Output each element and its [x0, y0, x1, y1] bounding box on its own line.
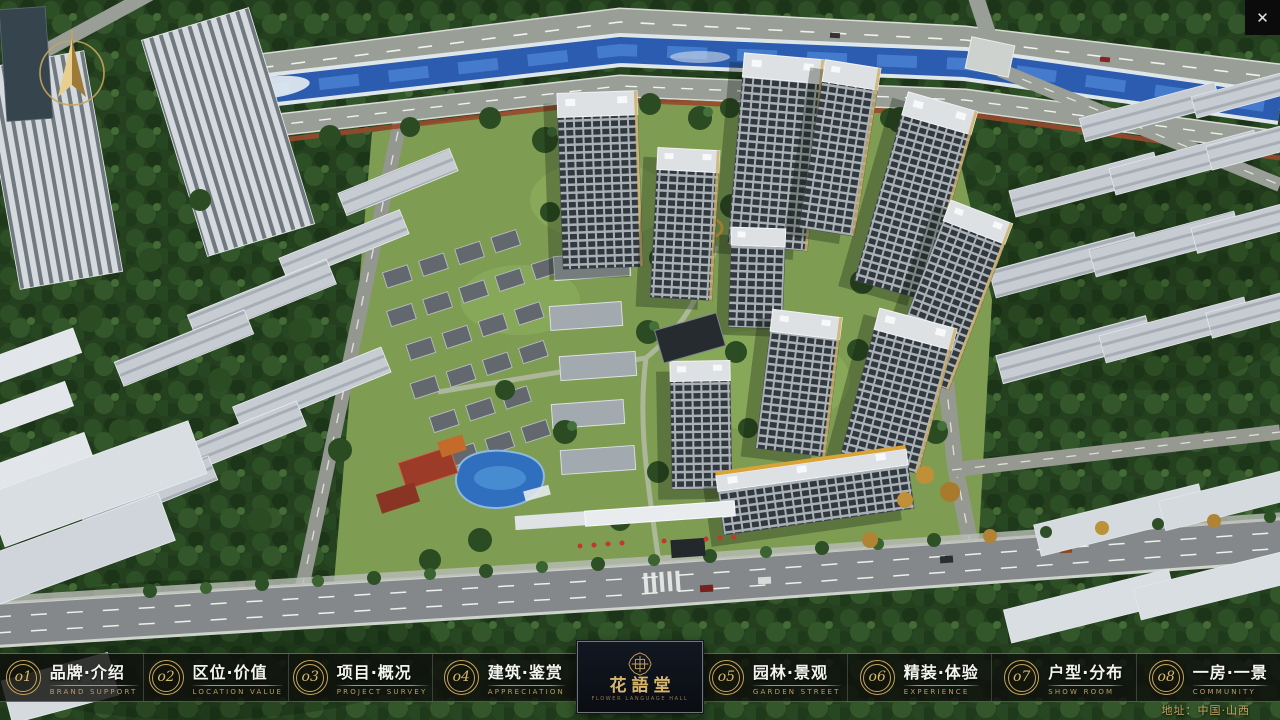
car — [940, 556, 953, 564]
nav-number-badge: o1 — [6, 660, 41, 695]
nav-item-floorplan[interactable]: o7 户型·分布 SHOW ROOM — [992, 654, 1137, 701]
gold-rule — [904, 685, 979, 686]
nav-number: o1 — [15, 669, 32, 685]
gold-rule — [337, 685, 428, 686]
project-logo[interactable]: 花語堂 FLOWER LANGUAGE HALL — [577, 641, 703, 713]
nav-label: 品牌·介绍 — [50, 659, 138, 683]
nav-number-badge: o2 — [149, 660, 184, 695]
nav-item-project[interactable]: o3 项目·概况 PROJECT SURVEY — [289, 654, 433, 701]
address-label: 地址：中国·山西 — [1162, 702, 1251, 718]
nav-item-decoration[interactable]: o6 精装·体验 EXPERIENCE — [848, 654, 993, 701]
gold-rule — [193, 685, 284, 686]
gold-rule — [50, 685, 138, 686]
gold-rule — [753, 685, 841, 686]
nav-sublabel: LOCATION VALUE — [193, 688, 284, 696]
nav-number-badge: o4 — [444, 660, 479, 695]
bottom-nav-bar: o1 品牌·介绍 BRAND SUPPORT o2 区位·价值 LOCATION… — [0, 653, 1280, 702]
gold-rule — [1193, 685, 1268, 686]
nav-number-badge: o8 — [1149, 660, 1184, 695]
nav-item-location[interactable]: o2 区位·价值 LOCATION VALUE — [144, 654, 288, 701]
nav-label: 区位·价值 — [193, 659, 284, 683]
nav-label: 建筑·鉴赏 — [488, 659, 565, 683]
seal-icon — [628, 652, 652, 676]
nav-sublabel: COMMUNITY — [1193, 688, 1268, 696]
nav-number: o7 — [1013, 669, 1030, 685]
logo-title: 花語堂 — [605, 678, 676, 695]
nav-item-room-view[interactable]: o8 一房·一景 COMMUNITY — [1137, 654, 1280, 701]
nav-number: o8 — [1158, 669, 1175, 685]
nav-label: 户型·分布 — [1048, 659, 1123, 683]
logo-tagline: FLOWER LANGUAGE HALL — [592, 697, 689, 702]
nav-number-badge: o5 — [709, 660, 744, 695]
nav-number-badge: o6 — [860, 660, 895, 695]
nav-number-badge: o7 — [1004, 660, 1039, 695]
nav-number: o5 — [718, 669, 735, 685]
nav-number: o6 — [869, 669, 886, 685]
nav-label: 园林·景观 — [753, 659, 841, 683]
nav-sublabel: BRAND SUPPORT — [50, 688, 138, 696]
car — [700, 585, 713, 593]
nav-sublabel: SHOW ROOM — [1048, 688, 1123, 696]
nav-label: 项目·概况 — [337, 659, 428, 683]
gold-rule — [1048, 685, 1123, 686]
gold-rule — [488, 685, 565, 686]
nav-sublabel: PROJECT SURVEY — [337, 688, 428, 696]
car — [758, 577, 771, 585]
sales-presentation-screen: ✕ o1 品牌·介绍 BRAND SUPPORT o2 区位·价值 LOCATI… — [0, 0, 1280, 720]
nav-sublabel: EXPERIENCE — [904, 688, 979, 696]
nav-item-architecture[interactable]: o4 建筑·鉴赏 APPRECIATION — [433, 654, 577, 701]
nav-item-brand[interactable]: o1 品牌·介绍 BRAND SUPPORT — [0, 654, 144, 701]
nav-number-badge: o3 — [293, 660, 328, 695]
close-button[interactable]: ✕ — [1245, 0, 1280, 35]
nav-label: 一房·一景 — [1193, 659, 1268, 683]
nav-sublabel: APPRECIATION — [488, 688, 565, 696]
aerial-masterplan-render — [0, 0, 1280, 720]
nav-sublabel: GARDEN STREET — [753, 688, 841, 696]
nav-item-garden[interactable]: o5 园林·景观 GARDEN STREET — [703, 654, 848, 701]
close-icon: ✕ — [1256, 9, 1269, 27]
compass-icon — [34, 26, 110, 112]
nav-number: o4 — [453, 669, 470, 685]
nav-label: 精装·体验 — [904, 659, 979, 683]
nav-number: o2 — [157, 669, 174, 685]
nav-number: o3 — [302, 669, 319, 685]
